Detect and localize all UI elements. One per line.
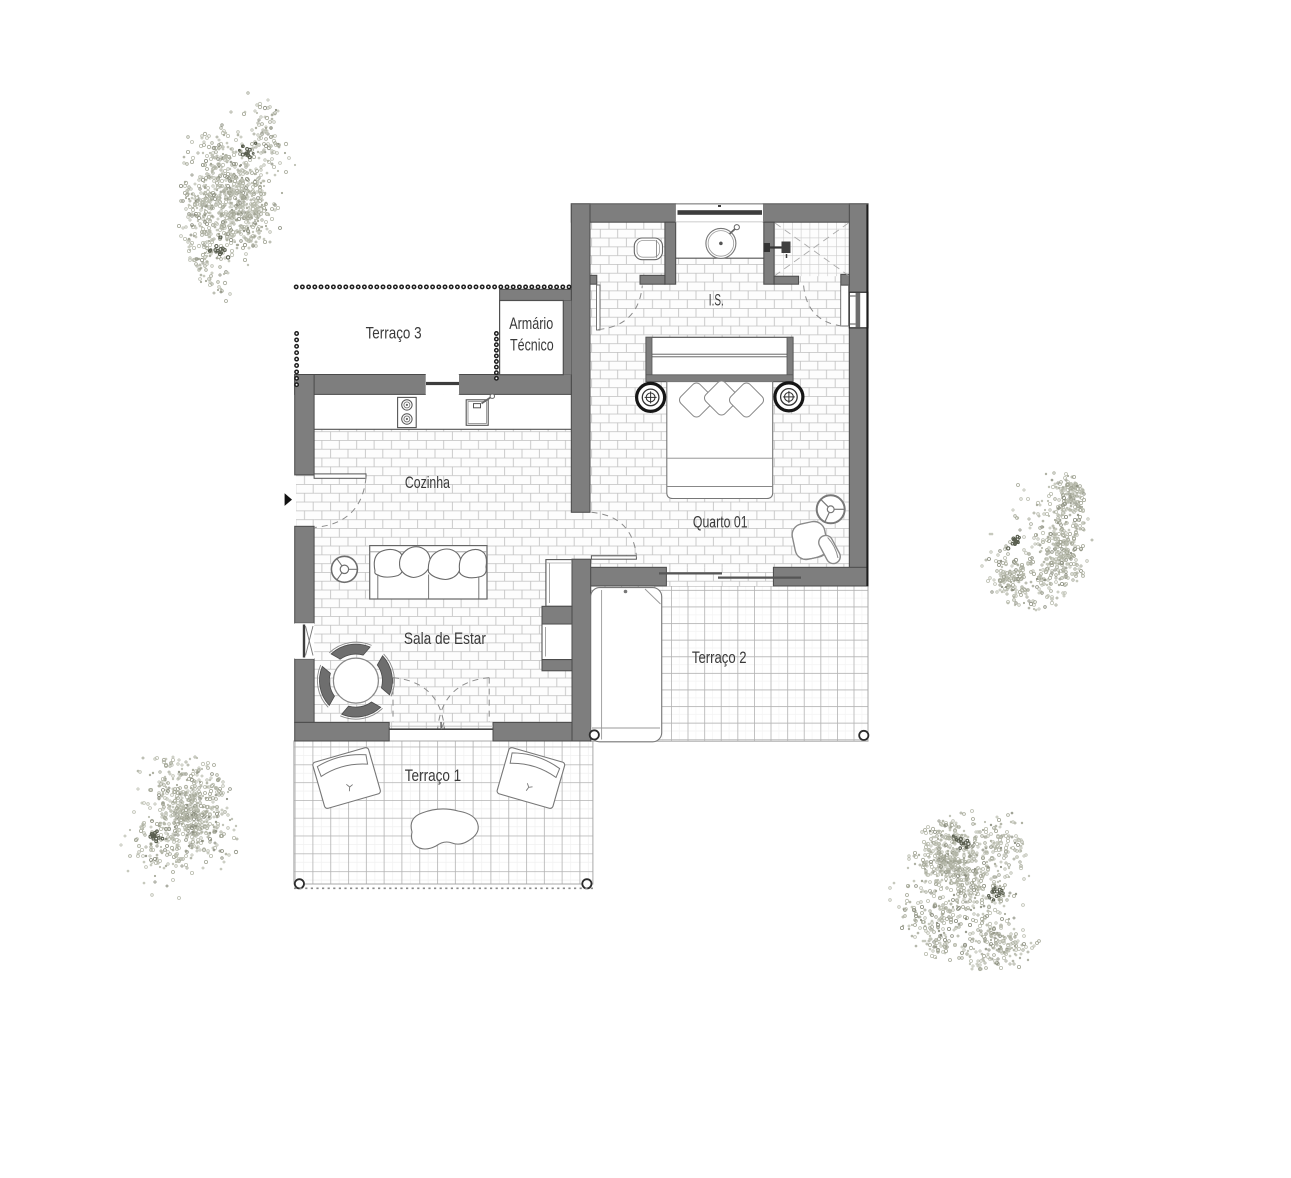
svg-text:Cozinha: Cozinha xyxy=(405,473,450,492)
svg-text:Terraço 3: Terraço 3 xyxy=(366,324,422,343)
svg-text:Terraço 1: Terraço 1 xyxy=(405,766,461,785)
svg-text:Armário: Armário xyxy=(509,314,553,333)
svg-text:Técnico: Técnico xyxy=(510,336,554,355)
svg-text:Sala de Estar: Sala de Estar xyxy=(404,629,486,648)
svg-text:Terraço 2: Terraço 2 xyxy=(692,648,747,667)
svg-text:I.S.: I.S. xyxy=(709,290,724,309)
svg-text:Quarto 01: Quarto 01 xyxy=(693,513,748,532)
